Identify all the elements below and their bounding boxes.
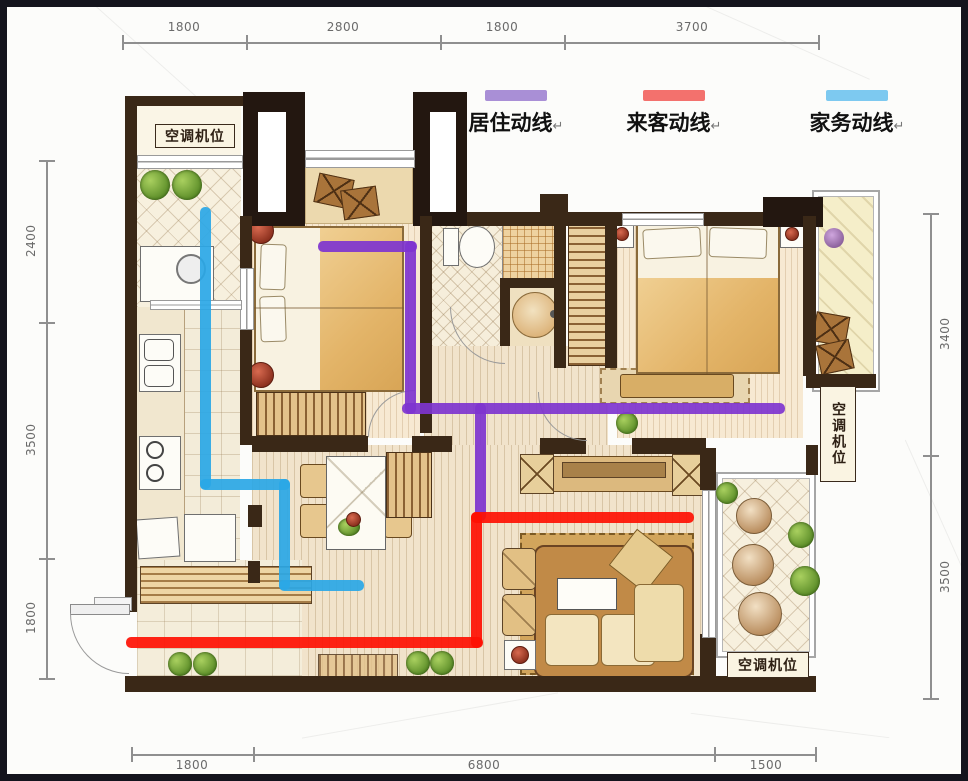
side-table [520,454,554,494]
dim-tick [923,455,939,457]
nightstand-plant [785,227,799,241]
entry-door-arc [70,613,129,674]
ac-unit-label-top-left: 空调机位 [155,124,235,148]
chore-path-segment [200,479,290,490]
pillow [642,227,701,260]
planter-pot [738,592,782,636]
planter-pot [736,498,772,534]
tv-set [562,462,666,478]
legend-label-guest: 来客动线↵ [616,107,732,137]
centerpiece-flowers [346,512,361,527]
dim-tick [253,747,255,762]
plant [172,170,202,200]
bed-seam [706,222,708,374]
sink-basin [144,365,174,387]
wall-segment [412,436,452,452]
ac-unit-label-right: 空调机位 [820,386,856,482]
plant [430,651,454,675]
shower-area [502,220,556,280]
master-blanket [638,278,778,372]
wall-stub [248,561,260,583]
plant [168,652,192,676]
dim-tick [923,213,939,215]
sketch-line [650,0,870,80]
ac-unit-label-bottom-right: 空调机位 [727,652,809,678]
wall-segment [540,194,568,212]
chore-path-segment [200,207,211,489]
wall-stub [806,445,818,475]
dim-label-left: 2400 [24,211,38,271]
dim-tick [714,747,716,762]
pillar-shaft-window [258,112,286,212]
chore-path-segment [279,479,290,590]
nightstand-plant [615,227,629,241]
kitchen-cabinet [136,517,181,560]
fridge [184,514,236,562]
legend-swatch-resident [485,90,547,101]
burner [146,464,164,482]
pillar-shaft-window [430,112,456,212]
dim-label-top: 2800 [313,20,373,34]
legend-label-chore: 家务动线↵ [799,107,915,137]
dimension-line-top [122,42,820,44]
sofa-cushion [545,614,599,666]
wall-segment [803,216,816,376]
sink-basin [144,339,174,361]
legend-item-chore: 家务动线↵ [799,90,915,137]
resident-path-segment [318,241,417,252]
wall-stub [248,505,262,527]
guest-path-segment [471,512,694,523]
wall-segment [125,96,137,612]
burner [146,441,164,459]
return-mark-icon: ↵ [711,119,722,134]
sketch-line [81,0,208,108]
floor-plant [616,412,638,434]
legend-item-resident: 居住动线↵ [458,90,574,137]
resident-path-segment [405,241,416,414]
dim-tick [39,558,55,560]
kitchen-balcony-slider [150,300,242,310]
corner-table-plant [511,646,529,664]
wall-segment [125,96,247,106]
legend-swatch-guest [643,90,705,101]
dim-label-bottom: 6800 [454,758,514,772]
bed-seam [254,307,404,309]
seat-cushion [340,186,380,221]
living-balcony-window [702,490,716,638]
legend-swatch-chore [826,90,888,101]
balcony-sliding-door [240,268,254,330]
bedroom2-blanket [320,228,402,390]
dim-label-left: 3500 [24,410,38,470]
bedroom2-wardrobe [256,392,366,436]
sketch-line [302,692,558,738]
chore-path-segment [279,580,364,591]
wall-segment [605,216,617,368]
armchair [502,548,536,590]
wall-segment [700,634,716,678]
wall-segment [554,216,566,368]
coffee-table [557,578,617,610]
plant [790,566,820,596]
dim-label-left: 1800 [24,588,38,648]
wall-segment [700,448,716,490]
wall-segment [467,212,609,226]
dim-tick [39,322,55,324]
dim-tick [815,747,817,762]
dim-label-bottom: 1800 [162,758,222,772]
dim-label-top: 3700 [662,20,722,34]
dim-tick [440,35,442,50]
dim-tick [39,678,55,680]
plant [406,651,430,675]
pillow [259,244,287,291]
dim-tick [122,35,124,50]
resident-path-segment [475,403,486,521]
master-wardrobe [568,218,610,366]
dim-tick [131,747,133,762]
sketch-line [691,713,890,738]
balcony-flower [824,228,844,248]
plant [788,522,814,548]
armchair [502,594,536,636]
pillow [708,227,767,259]
dim-label-right: 3400 [938,304,952,364]
plant [140,170,170,200]
wall-segment [240,216,252,445]
dim-label-bottom: 1500 [736,758,796,772]
laundry-balcony-window [137,155,243,169]
dining-hutch [386,452,432,518]
dimension-line-left [46,160,48,680]
pillow [259,296,287,343]
legend-item-guest: 来客动线↵ [616,90,732,137]
dim-tick [246,35,248,50]
dim-tick [39,160,55,162]
master-window [622,213,704,226]
toilet-tank [443,228,459,266]
dim-label-top: 1800 [472,20,532,34]
wall-segment [252,436,368,452]
bottom-wall [125,676,816,692]
return-mark-icon: ↵ [553,119,564,134]
dim-label-top: 1800 [154,20,214,34]
wall-segment [632,438,706,454]
bed-bench [620,374,734,398]
dim-tick [923,698,939,700]
dim-tick [818,35,820,50]
dim-label-right: 3500 [938,547,952,607]
legend-label-resident: 居住动线↵ [458,107,574,137]
plant [716,482,738,504]
dim-tick [564,35,566,50]
doormat [318,654,398,678]
resident-path-segment [402,403,785,414]
plant [193,652,217,676]
dining-table [326,456,386,550]
guest-path-segment [126,637,483,648]
bay-window [305,150,415,168]
planter-pot [732,544,774,586]
toilet-bowl [459,226,495,268]
wall-segment [420,216,432,433]
chaise-cushion [634,584,684,662]
floorplan-image: 空调机位 空调机位 空调机位 居住动线↵ 来客动线↵ 家务动线↵ 1800 28… [0,0,968,781]
guest-path-segment [471,512,482,648]
sketch-line [905,440,968,641]
return-mark-icon: ↵ [894,119,905,134]
